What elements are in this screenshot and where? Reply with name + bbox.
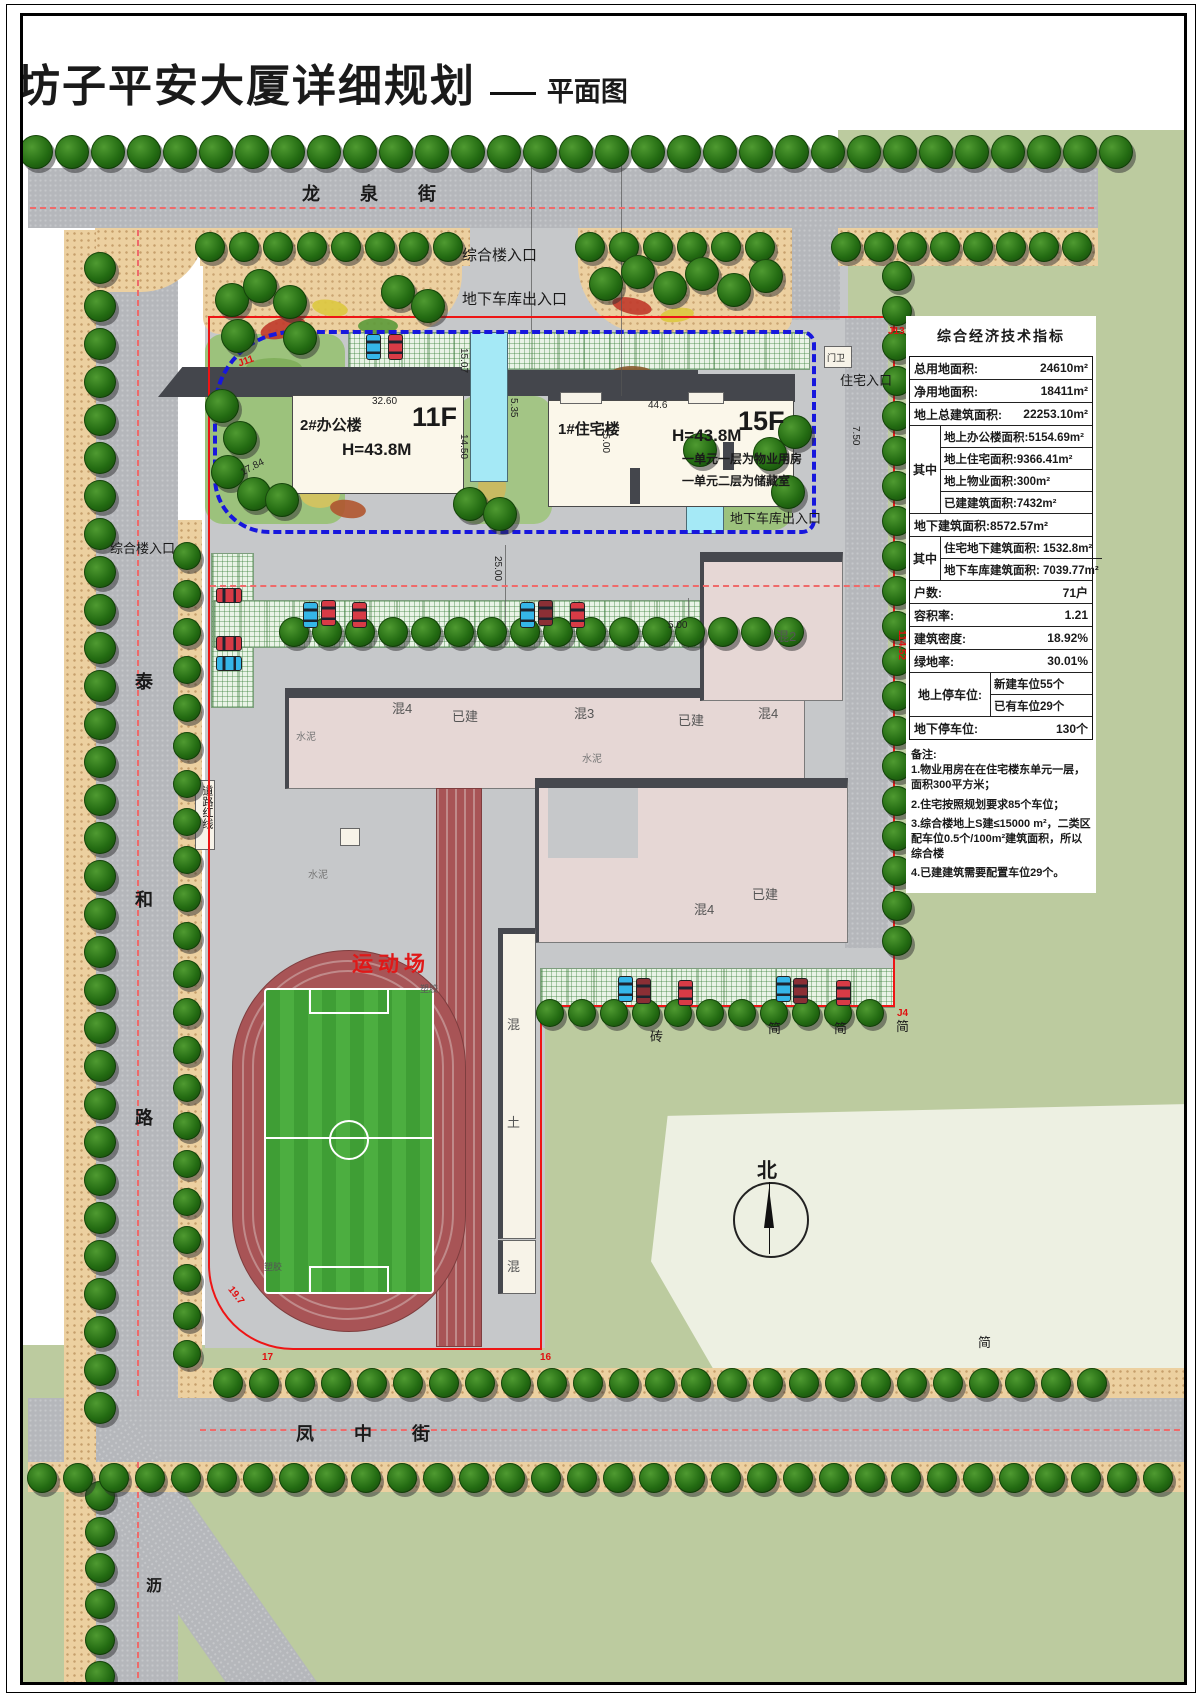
tree-icon <box>271 135 305 169</box>
row-value: 1.21 <box>1065 608 1088 622</box>
tree-icon <box>811 135 845 169</box>
existing-label: 已建 <box>452 706 478 725</box>
tree-icon <box>378 617 408 647</box>
tree-icon <box>963 232 993 262</box>
survey-mark: J13 <box>888 326 905 337</box>
strip-label: 土 <box>507 1112 520 1131</box>
residence-note1: 一单元一层为物业用房 <box>682 450 802 467</box>
site-boundary-west <box>208 316 210 1253</box>
tree-icon <box>229 232 259 262</box>
table-row: 地下停车位:130个 <box>910 716 1092 739</box>
tree-icon <box>84 442 116 474</box>
tree-icon <box>856 999 884 1027</box>
tree-icon <box>568 999 596 1027</box>
car-icon <box>618 976 633 1002</box>
tree-icon <box>265 483 299 517</box>
tree-icon <box>84 670 116 702</box>
tree-icon <box>249 1368 279 1398</box>
note-line: 2.住宅按照规划要求85个车位； <box>911 798 1091 813</box>
tree-icon <box>85 1517 115 1547</box>
small-kiosk <box>340 828 360 846</box>
office-name: 2#办公楼 <box>300 414 362 435</box>
tree-icon <box>173 1302 201 1330</box>
tree-icon <box>357 1368 387 1398</box>
tree-icon <box>819 1463 849 1493</box>
tree-icon <box>84 252 116 284</box>
group-item: 新建车位55个 <box>991 673 1092 694</box>
tree-icon <box>84 1354 116 1386</box>
tree-icon <box>173 542 201 570</box>
tree-icon <box>84 556 116 588</box>
table-group-row: 其中 地上办公楼面积:5154.69m² 地上住宅面积:9366.41m² 地上… <box>910 425 1092 513</box>
tree-icon <box>283 321 317 355</box>
tree-icon <box>991 135 1025 169</box>
tree-icon <box>195 232 225 262</box>
tree-icon <box>273 285 307 319</box>
tree-icon <box>411 617 441 647</box>
tree-icon <box>263 232 293 262</box>
tree-icon <box>1099 135 1133 169</box>
car-icon <box>216 656 242 671</box>
label-residential-entrance: 住宅入口 <box>840 370 892 389</box>
row-label: 建筑密度: <box>914 630 966 647</box>
tree-icon <box>84 974 116 1006</box>
label-complex-entrance-west: 综合楼入口 <box>110 538 175 557</box>
site-plan-canvas: 龙泉街 泰和路 凤中街 沥 综合楼入口 地下车库出入口 地下车库出入口 门卫 住… <box>20 13 1187 1685</box>
tree-icon <box>235 135 269 169</box>
tree-icon <box>351 1463 381 1493</box>
tree-icon <box>84 708 116 740</box>
strip-building <box>498 928 536 1239</box>
tree-icon <box>84 1392 116 1424</box>
tree-icon <box>933 1368 963 1398</box>
row-label: 户数: <box>914 584 942 601</box>
group-items: 住宅地下建筑面积: 1532.8m² 地下车库建筑面积: 7039.77m² <box>941 537 1102 580</box>
tree-icon <box>609 617 639 647</box>
title-underline <box>490 92 536 95</box>
survey-mark: 16 <box>540 1352 551 1363</box>
table-title: 综合经济技术指标 <box>909 326 1093 346</box>
tree-icon <box>387 1463 417 1493</box>
tree-icon <box>84 594 116 626</box>
tree-icon <box>63 1463 93 1493</box>
tree-icon <box>20 135 53 169</box>
north-label: 北 <box>757 1154 777 1183</box>
dim-office-width: 32.60 <box>372 396 397 407</box>
surface-label-brick: 砖 <box>650 1026 663 1045</box>
tree-icon <box>631 135 665 169</box>
shed-label: 简 <box>768 1018 781 1037</box>
car-icon <box>520 602 535 628</box>
table-row: 总用地面积:24610m² <box>910 357 1092 379</box>
group-item: 地上住宅面积:9366.41m² <box>941 447 1092 469</box>
tree-icon <box>1063 135 1097 169</box>
north-arrow-icon <box>764 1188 774 1228</box>
group-item: 住宅地下建筑面积: 1532.8m² <box>941 537 1102 558</box>
tree-icon <box>429 1368 459 1398</box>
car-icon <box>570 602 585 628</box>
tree-icon <box>451 135 485 169</box>
tree-icon <box>501 1368 531 1398</box>
car-icon <box>366 334 381 360</box>
survey-mark: J4 <box>897 1008 908 1019</box>
tree-icon <box>85 1553 115 1583</box>
field-center-circle <box>329 1120 369 1160</box>
row-value: 24610m² <box>1040 361 1088 375</box>
tree-icon <box>453 487 487 521</box>
courtyard-cut <box>548 788 638 858</box>
car-icon <box>303 602 318 628</box>
row-value: 71户 <box>1063 584 1088 601</box>
tree-icon <box>861 1368 891 1398</box>
dim-ramp-north: 15.07 <box>458 348 469 373</box>
car-icon <box>538 600 553 626</box>
residence-note2: 一单元二层为储藏室 <box>682 472 790 489</box>
note-line: 1.物业用房在在住宅楼东单元一层，面积300平方米； <box>911 763 1091 793</box>
existing-label: 已建 <box>678 710 704 729</box>
tree-icon <box>84 1164 116 1196</box>
road-east-internal <box>845 316 888 948</box>
shed-label: 简 <box>978 1332 991 1351</box>
tree-icon <box>315 1463 345 1493</box>
tree-icon <box>1027 135 1061 169</box>
car-icon <box>388 334 403 360</box>
existing-label-south: 混4 <box>694 899 714 918</box>
tree-icon <box>567 1463 597 1493</box>
tree-icon <box>223 421 257 455</box>
row-label: 容积率: <box>914 607 954 624</box>
notes-block: 备注: 1.物业用房在在住宅楼东单元一层，面积300平方米； 2.住宅按照规划要… <box>909 740 1093 881</box>
car-icon <box>321 600 336 626</box>
car-icon <box>836 980 851 1006</box>
tree-icon <box>573 1368 603 1398</box>
note-line: 4.已建建筑需要配置车位29个。 <box>911 866 1091 881</box>
plastic-label: 塑胶 <box>420 982 438 995</box>
residential-unit-tab <box>688 392 724 404</box>
label-gate: 门卫 <box>827 351 845 364</box>
tree-icon <box>685 257 719 291</box>
tree-icon <box>173 808 201 836</box>
tree-icon <box>996 232 1026 262</box>
goal-box-top <box>309 988 389 1014</box>
row-value: 22253.10m² <box>1023 407 1088 421</box>
tree-icon <box>600 999 628 1027</box>
dim-parking-offset: 25.00 <box>492 556 503 581</box>
tree-icon <box>1143 1463 1173 1493</box>
table-row: 建筑密度:18.92% <box>910 626 1092 649</box>
tree-icon <box>1077 1368 1107 1398</box>
tree-icon <box>708 617 738 647</box>
row-label: 绿地率: <box>914 653 954 670</box>
note-line: 3.综合楼地上S建≤15000 m²，二类区配车位0.5个/100m²建筑面积，… <box>911 817 1091 863</box>
tree-icon <box>897 232 927 262</box>
tree-icon <box>595 135 629 169</box>
tree-icon <box>1062 232 1092 262</box>
tree-icon <box>999 1463 1029 1493</box>
inner-border-frame: 龙泉街 泰和路 凤中街 沥 综合楼入口 地下车库出入口 地下车库出入口 门卫 住… <box>20 13 1187 1685</box>
tree-icon <box>603 1463 633 1493</box>
strip-label: 混 <box>507 1014 520 1033</box>
tree-icon <box>728 999 756 1027</box>
table-grid: 总用地面积:24610m² 净用地面积:18411m² 地上总建筑面积:2225… <box>909 356 1093 740</box>
tree-icon <box>381 275 415 309</box>
group-item: 已有车位29个 <box>991 694 1092 716</box>
drawing-title: 坊子平安大厦详细规划 <box>20 62 476 111</box>
existing-label: 混3 <box>574 703 594 722</box>
tree-icon <box>205 389 239 423</box>
drawing-title-block: 坊子平安大厦详细规划 平面图 <box>20 50 628 114</box>
tree-icon <box>609 1368 639 1398</box>
table-row: 地下建筑面积:8572.57m² <box>910 513 1092 536</box>
surface-label-cement: 水泥 <box>296 728 316 743</box>
tree-icon <box>85 1661 115 1685</box>
tree-icon <box>717 273 751 307</box>
tree-icon <box>85 1589 115 1619</box>
car-icon <box>216 588 242 603</box>
tree-icon <box>483 497 517 531</box>
residence-floors: 15F <box>738 406 785 437</box>
label-garage-entrance-north: 地下车库出入口 <box>462 288 567 309</box>
table-row: 地上总建筑面积:22253.10m² <box>910 402 1092 425</box>
tree-icon <box>27 1463 57 1493</box>
tree-icon <box>55 135 89 169</box>
tree-icon <box>495 1463 525 1493</box>
tree-icon <box>775 135 809 169</box>
tree-icon <box>465 1368 495 1398</box>
strip-label: 混 <box>507 1256 520 1275</box>
tree-icon <box>969 1368 999 1398</box>
group-item: 地下车库建筑面积: 7039.77m² <box>941 558 1102 580</box>
dim-east-road: 7.50 <box>850 426 861 445</box>
tree-icon <box>243 269 277 303</box>
table-row: 户数:71户 <box>910 580 1092 603</box>
tree-icon <box>927 1463 957 1493</box>
tree-icon <box>173 1264 201 1292</box>
tree-icon <box>1041 1368 1071 1398</box>
table-row: 容积率:1.21 <box>910 603 1092 626</box>
tree-icon <box>1071 1463 1101 1493</box>
tech-indicators-table: 综合经济技术指标 总用地面积:24610m² 净用地面积:18411m² 地上总… <box>906 316 1096 893</box>
tree-icon <box>173 1150 201 1178</box>
road-centerline <box>137 1462 139 1685</box>
tree-icon <box>343 135 377 169</box>
car-icon <box>678 980 693 1006</box>
group-items: 新建车位55个 已有车位29个 <box>991 673 1092 716</box>
tree-icon <box>393 1368 423 1398</box>
tree-icon <box>645 1368 675 1398</box>
street-name-li: 沥 <box>146 1572 162 1596</box>
tree-icon <box>882 891 912 921</box>
tree-icon <box>847 135 881 169</box>
tree-icon <box>741 617 771 647</box>
tree-icon <box>753 1368 783 1398</box>
tree-icon <box>173 618 201 646</box>
tree-icon <box>173 580 201 608</box>
row-label: 净用地面积: <box>914 383 978 400</box>
label-complex-entrance-north: 综合楼入口 <box>462 244 537 265</box>
dim-ramp-gap: 5.35 <box>508 398 519 417</box>
road-centerline <box>30 207 1094 209</box>
tree-icon <box>433 232 463 262</box>
tree-icon <box>415 135 449 169</box>
tree-icon <box>855 1463 885 1493</box>
tree-icon <box>955 135 989 169</box>
gate-house: 门卫 <box>824 346 852 368</box>
tree-icon <box>675 1463 705 1493</box>
tree-icon <box>536 999 564 1027</box>
tree-icon <box>84 860 116 892</box>
tree-icon <box>199 135 233 169</box>
row-value: 18411m² <box>1041 384 1088 398</box>
tree-icon <box>99 1463 129 1493</box>
unit-joint <box>630 468 640 504</box>
tree-icon <box>531 1463 561 1493</box>
shed-label: 简 <box>834 1018 847 1037</box>
tree-icon <box>1029 232 1059 262</box>
tree-icon <box>307 135 341 169</box>
tree-icon <box>365 232 395 262</box>
surface-label-cement: 水泥 <box>308 866 328 881</box>
tree-icon <box>919 135 953 169</box>
table-group-row: 地上停车位: 新建车位55个 已有车位29个 <box>910 672 1092 716</box>
tree-icon <box>84 480 116 512</box>
tree-icon <box>575 232 605 262</box>
office-height: H=43.8M <box>342 440 411 460</box>
tree-icon <box>84 936 116 968</box>
car-icon <box>636 978 651 1004</box>
tree-icon <box>711 232 741 262</box>
dim-residence-depth: 15.00 <box>600 428 611 453</box>
row-value: 18.92% <box>1047 631 1088 645</box>
group-label: 地上停车位: <box>910 673 991 716</box>
tree-icon <box>747 1463 777 1493</box>
office-floors: 11F <box>412 402 457 433</box>
label-garage-entrance-east: 地下车库出入口 <box>730 508 821 527</box>
tree-icon <box>477 617 507 647</box>
row-value: 130个 <box>1056 720 1088 737</box>
site-boundary-mid-v <box>540 1005 542 1350</box>
tree-icon <box>864 232 894 262</box>
tree-icon <box>127 135 161 169</box>
group-item: 已建建筑面积:7432m² <box>941 491 1092 513</box>
tree-icon <box>173 884 201 912</box>
existing-label-ne: 混2 <box>776 626 796 645</box>
tree-icon <box>621 255 655 289</box>
car-icon <box>793 978 808 1004</box>
existing-building-row <box>285 688 805 789</box>
existing-label: 混4 <box>758 703 778 722</box>
tree-icon <box>930 232 960 262</box>
tree-icon <box>825 1368 855 1398</box>
tree-icon <box>589 267 623 301</box>
tree-icon <box>711 1463 741 1493</box>
group-items: 地上办公楼面积:5154.69m² 地上住宅面积:9366.41m² 地上物业面… <box>941 426 1092 513</box>
tree-icon <box>84 1012 116 1044</box>
tree-icon <box>444 617 474 647</box>
row-label: 地下停车位: <box>914 720 978 737</box>
tree-icon <box>882 926 912 956</box>
tree-icon <box>173 1188 201 1216</box>
goal-box-bottom <box>309 1266 389 1292</box>
tree-icon <box>173 1074 201 1102</box>
tree-icon <box>221 319 255 353</box>
existing-label-south: 已建 <box>752 884 778 903</box>
tree-icon <box>379 135 413 169</box>
tree-icon <box>653 271 687 305</box>
row-label: 地上总建筑面积: <box>914 406 1002 423</box>
tree-icon <box>135 1463 165 1493</box>
tree-icon <box>321 1368 351 1398</box>
table-row: 绿地率:30.01% <box>910 649 1092 672</box>
tree-icon <box>84 822 116 854</box>
drawing-subtitle: 平面图 <box>547 77 628 107</box>
tree-icon <box>173 1340 201 1368</box>
tree-icon <box>84 1202 116 1234</box>
tree-icon <box>84 1240 116 1272</box>
tree-icon <box>173 770 201 798</box>
group-item: 地上办公楼面积:5154.69m² <box>941 426 1092 447</box>
tree-icon <box>84 328 116 360</box>
tree-icon <box>213 1368 243 1398</box>
tree-icon <box>91 135 125 169</box>
tree-icon <box>173 922 201 950</box>
tree-icon <box>84 1088 116 1120</box>
tree-icon <box>84 1050 116 1082</box>
tree-icon <box>681 1368 711 1398</box>
tree-icon <box>783 1463 813 1493</box>
tree-icon <box>897 1368 927 1398</box>
tree-icon <box>537 1368 567 1398</box>
road-longquan-street <box>28 168 1098 228</box>
tree-icon <box>173 732 201 760</box>
tree-icon <box>173 1036 201 1064</box>
site-plan-sheet: { "title": {"main": "坊子平安大厦详细规划", "suffi… <box>0 0 1200 1697</box>
tree-icon <box>171 1463 201 1493</box>
open-field-southeast <box>640 1098 1187 1395</box>
car-icon <box>352 602 367 628</box>
tree-icon <box>285 1368 315 1398</box>
tree-icon <box>399 232 429 262</box>
tree-icon <box>696 999 724 1027</box>
tree-icon <box>523 135 557 169</box>
tree-icon <box>883 135 917 169</box>
tree-icon <box>279 1463 309 1493</box>
tree-icon <box>789 1368 819 1398</box>
tree-icon <box>84 290 116 322</box>
tree-icon <box>831 232 861 262</box>
tree-icon <box>84 1278 116 1310</box>
tree-icon <box>84 746 116 778</box>
stadium-label: 运动场 <box>352 948 430 978</box>
label-road-red-line: 道路红线 <box>199 785 215 829</box>
tree-icon <box>84 1316 116 1348</box>
tree-icon <box>639 1463 669 1493</box>
plastic-label: 塑胶 <box>264 1260 282 1273</box>
tree-icon <box>84 632 116 664</box>
tree-icon <box>84 898 116 930</box>
site-boundary-north <box>208 316 895 318</box>
tree-icon <box>163 135 197 169</box>
street-name-fengzhong: 凤中街 <box>296 1420 470 1446</box>
tree-icon <box>173 846 201 874</box>
car-icon <box>776 976 791 1002</box>
group-label: 其中 <box>910 426 941 513</box>
tree-icon <box>745 232 775 262</box>
street-name-taihe: 泰和路 <box>130 672 156 1292</box>
tree-icon <box>1005 1368 1035 1398</box>
residential-unit-tab <box>560 392 602 404</box>
tree-icon <box>749 259 783 293</box>
